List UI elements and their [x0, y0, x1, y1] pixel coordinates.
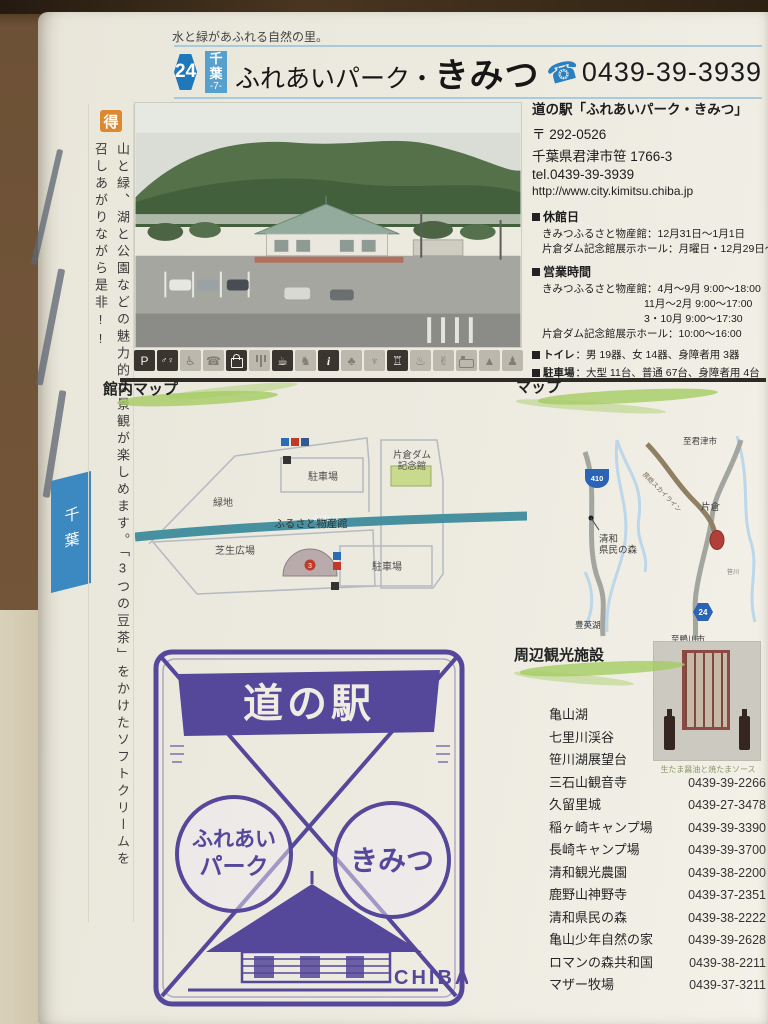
stamp-banner-text: 道の駅 — [243, 682, 375, 726]
shopping-icon — [226, 350, 247, 371]
sight-row: ロマンの森共和国0439-38-2211 — [549, 952, 766, 975]
address: 千葉県君津市笹 1766-3 — [532, 145, 766, 165]
page-edge-sliver — [36, 268, 65, 385]
station-phone-number: 0439-39-3939 — [582, 57, 762, 88]
area-map: 房総スカイライン 410 24 至君津市 片倉 清和 県民の森 豊英湖 至鴨川市… — [555, 422, 767, 646]
bussankan-label: ふるさと物産館 — [274, 517, 348, 530]
sights-list: 亀山湖七里川渓谷笹川湖展望台三石山観音寺0439-39-2266久留里城0439… — [549, 704, 766, 997]
sight-name: 長崎キャンプ場 — [549, 839, 640, 862]
station-official-name: 道の駅「ふれあいパーク・きみつ」 — [532, 98, 766, 118]
postal-code: 〒 292-0526 — [532, 123, 766, 143]
to-kimitsu-label: 至君津市 — [683, 436, 718, 446]
stamp-corner-marks — [170, 746, 450, 762]
playground-icon: ♟ — [502, 350, 523, 371]
sights-heading: 周辺観光施設 — [514, 644, 604, 665]
lawn-label: 芝生広場 — [215, 544, 255, 557]
sight-phone: 0439-38-2211 — [689, 952, 766, 975]
closed-day-line: きみつふるさと物産館：12月31日～1月1日 — [532, 227, 766, 242]
website-url: http://www.city.kimitsu.chiba.jp — [532, 184, 766, 198]
sight-row: 七里川渓谷 — [549, 727, 766, 750]
facility-map-heading: 館内マップ — [103, 378, 178, 399]
sight-name: 清和観光農園 — [549, 862, 627, 885]
page-edge-sliver — [31, 149, 63, 265]
experience-icon: ✌ — [433, 350, 454, 371]
station-photo — [134, 102, 522, 348]
sight-name: 亀山湖 — [549, 704, 588, 727]
guidebook-page-photo: 千葉 水と緑があふれる自然の里。 24 千葉 -7- ふれあいパーク・きみつ ☎… — [0, 0, 768, 1024]
skyline-road-label: 房総スカイライン — [641, 470, 684, 514]
sight-row: 笹川湖展望台 — [549, 749, 766, 772]
prefecture-tab-label: 千葉 — [61, 504, 82, 559]
katakura-label: 片倉 — [701, 501, 721, 513]
hours-line: 片倉ダム記念館展示ホール：10:00～16:00 — [532, 327, 766, 342]
station-phone: ☎ 0439-39-3939 — [547, 57, 762, 88]
area-map-heading: マップ — [516, 376, 561, 397]
toilet-info: トイレ：男 19器、女 14器、身障者用 3器 — [532, 348, 766, 363]
station-location-marker — [710, 531, 724, 550]
seiwa-label: 清和 — [599, 533, 618, 545]
sight-row: 久留里城0439-27-3478 — [549, 794, 766, 817]
sight-name: 亀山少年自然の家 — [549, 929, 653, 952]
station-info: 道の駅「ふれあいパーク・きみつ」 〒 292-0526 千葉県君津市笹 1766… — [532, 98, 766, 384]
sight-row: 清和観光農園0439-38-2200 — [549, 862, 766, 885]
station-name-prefix: ふれあいパーク・ — [235, 65, 435, 93]
station-title: ふれあいパーク・きみつ — [235, 48, 540, 97]
cafe-icon: ☕ — [272, 350, 293, 371]
prefecture-name: 千葉 — [205, 52, 227, 81]
photo-road — [136, 313, 521, 347]
closed-days-label: 休館日 — [532, 208, 766, 225]
park-green-icon: ♣ — [341, 350, 362, 371]
station-tagline: 水と緑があふれる自然の里。 — [172, 28, 328, 45]
hours-line: 3・10月 9:00～17:30 — [532, 312, 766, 327]
svg-text:パーク: パーク — [200, 853, 269, 879]
photo-brick-walk — [255, 257, 404, 263]
sight-name: 七里川渓谷 — [549, 727, 614, 750]
magazine-page: 千葉 水と緑があふれる自然の里。 24 千葉 -7- ふれあいパーク・きみつ ☎… — [38, 12, 768, 1024]
svg-text:きみつ: きみつ — [350, 845, 434, 876]
toku-badge: 得 — [100, 110, 122, 132]
sight-phone: 0439-39-2266 — [688, 772, 766, 795]
station-header: 24 千葉 -7- ふれあいパーク・きみつ ☎ 0439-39-3939 — [174, 45, 762, 99]
closed-day-line: 片倉ダム記念館展示ホール：月曜日・12月29日～1月1日 — [532, 242, 766, 257]
sight-name: ロマンの森共和国 — [549, 952, 653, 975]
sight-phone: 0439-27-3478 — [688, 794, 766, 817]
hours-line: 11月～2月 9:00～17:00 — [532, 297, 766, 312]
stamp-country-text: CHIBA — [394, 967, 468, 989]
prefecture-number: -7- — [205, 81, 227, 92]
svg-text:ふれあい: ふれあい — [192, 828, 276, 851]
station-stamp: 道の駅 ふれあい パーク きみつ CHIBA — [150, 646, 468, 1016]
sight-row: 亀山少年自然の家0439-39-2628 — [549, 929, 766, 952]
parking-top-label: 駐車場 — [308, 470, 338, 483]
svg-text:410: 410 — [591, 474, 604, 483]
sight-name: マザー牧場 — [549, 974, 614, 997]
svg-text:県民の森: 県民の森 — [599, 544, 638, 556]
square-bullet-icon — [532, 351, 540, 359]
restroom-icon: ♂♀ — [157, 350, 178, 371]
sight-phone: 0439-37-2351 — [688, 884, 766, 907]
sight-phone: 0439-38-2222 — [688, 907, 766, 930]
telephone-icon: ☎ — [544, 53, 583, 91]
sight-phone: 0439-38-2200 — [688, 862, 766, 885]
book-lower-pages — [0, 610, 42, 1024]
sight-name: 三石山観音寺 — [549, 772, 627, 795]
section-divider — [120, 378, 766, 382]
facility-map: 県道24号 3 駐車場 緑地 片倉ダム 記念館 ふるさと物産館 芝生広場 駐車場 — [135, 424, 527, 630]
hours-section: 営業時間 きみつふるさと物産館：4月～9月 9:00～18:0011月～2月 9… — [532, 263, 766, 342]
svg-text:24: 24 — [699, 608, 708, 617]
svg-text:記念館: 記念館 — [398, 460, 427, 472]
fountain-icon: ♆ — [364, 350, 385, 371]
camping-icon: ▲ — [479, 350, 500, 371]
hours-line: きみつふるさと物産館：4月～9月 9:00～18:00 — [532, 282, 766, 297]
sight-name: 笹川湖展望台 — [549, 749, 627, 772]
sight-row: 長崎キャンプ場0439-39-3700 — [549, 839, 766, 862]
square-bullet-icon — [532, 213, 540, 221]
prefecture-edge-tab: 千葉 — [51, 471, 91, 593]
sight-row: 清和県民の森0439-38-2222 — [549, 907, 766, 930]
museum-icon: ♖ — [387, 350, 408, 371]
svg-text:3: 3 — [308, 563, 312, 570]
square-bullet-icon — [532, 268, 540, 276]
public-phone-icon: ☎ — [203, 350, 224, 371]
sight-phone: 0439-37-3211 — [689, 974, 766, 997]
river-label: 笹川 — [727, 568, 739, 576]
sight-phone: 0439-39-2628 — [688, 929, 766, 952]
sight-phone: 0439-39-3700 — [688, 839, 766, 862]
sight-name: 久留里城 — [549, 794, 601, 817]
telephone: tel.0439-39-3939 — [532, 167, 766, 182]
information-icon: i — [318, 350, 339, 371]
sight-row: 稲ヶ崎キャンプ場0439-39-3390 — [549, 817, 766, 840]
wheelchair-icon: ♿ — [180, 350, 201, 371]
sight-name: 稲ヶ崎キャンプ場 — [549, 817, 653, 840]
sight-phone: 0439-39-3390 — [688, 817, 766, 840]
sight-row: 三石山観音寺0439-39-2266 — [549, 772, 766, 795]
parking-icon: P — [134, 350, 155, 371]
station-name-main: きみつ — [434, 57, 539, 95]
prefecture-badge: 千葉 -7- — [205, 51, 227, 93]
parking-bottom-label: 駐車場 — [372, 560, 402, 573]
route-410-badge: 410 — [585, 469, 609, 488]
sidebar-note: 得 山と緑、湖と公園などの魅力的な景観が楽しめます。「3つの豆茶」をかけたソフト… — [88, 104, 134, 922]
sight-name: 清和県民の森 — [549, 907, 627, 930]
hot-spring-icon: ♨ — [410, 350, 431, 371]
baby-room-icon: ♞ — [295, 350, 316, 371]
dam-hall-label: 片倉ダム — [393, 449, 431, 461]
sight-row: マザー牧場0439-37-3211 — [549, 974, 766, 997]
sight-name: 鹿野山神野寺 — [549, 884, 627, 907]
sight-row: 亀山湖 — [549, 704, 766, 727]
sidebar-note-text: 山と緑、湖と公園などの魅力的な景観が楽しめます。「3つの豆茶」をかけたソフトクリ… — [89, 142, 133, 882]
restaurant-icon — [249, 350, 270, 371]
facility-icon-row: P♂♀♿☎☕♞i♣♆♖♨✌▲♟ — [134, 350, 524, 371]
sight-row: 鹿野山神野寺0439-37-2351 — [549, 884, 766, 907]
station-number-badge: 24 — [174, 54, 197, 90]
hours-label: 営業時間 — [532, 263, 766, 280]
closed-days-section: 休館日 きみつふるさと物産館：12月31日～1月1日片倉ダム記念館展示ホール：月… — [532, 208, 766, 257]
green-space-label: 緑地 — [213, 496, 233, 509]
lake-label: 豊英湖 — [575, 620, 601, 630]
lodging-icon — [456, 350, 477, 371]
